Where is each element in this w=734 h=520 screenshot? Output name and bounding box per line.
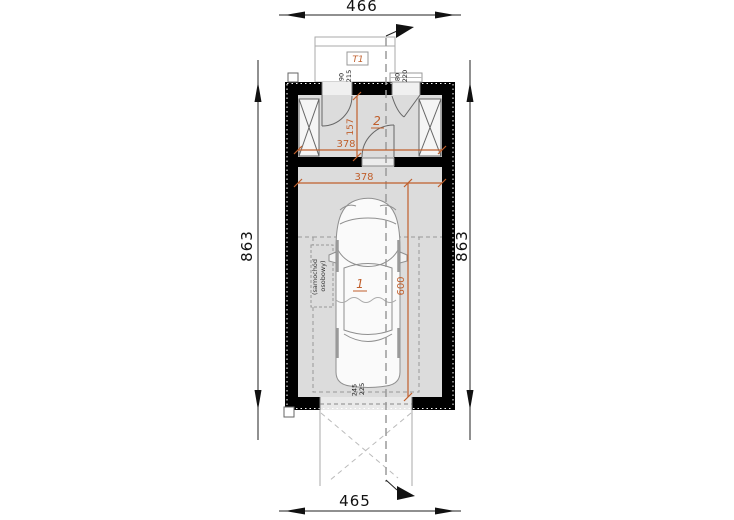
svg-text:2: 2 bbox=[373, 114, 381, 128]
dimension-left-label: 863 bbox=[238, 230, 256, 262]
downspout-bottom-left bbox=[284, 407, 294, 417]
entry-door-size: 90 215 bbox=[338, 70, 354, 82]
dimension-top-label: 466 bbox=[346, 0, 378, 15]
floor-plan: T1 bbox=[0, 0, 734, 520]
car-body bbox=[336, 198, 400, 387]
driveway bbox=[320, 410, 412, 486]
storage-left bbox=[299, 99, 319, 156]
dimension-parking-length-label: 600 bbox=[396, 276, 407, 295]
garage-gate-size: 245 225 bbox=[351, 382, 367, 397]
dimension-garage-width-label: 378 bbox=[354, 172, 373, 183]
dimension-bottom-label: 465 bbox=[339, 492, 371, 510]
axis-arrow-top bbox=[396, 24, 414, 38]
svg-text:1: 1 bbox=[356, 277, 364, 291]
car-note: (samochód osobowy) bbox=[311, 257, 327, 295]
dimension-right-label: 863 bbox=[453, 230, 471, 262]
dimension-vestibule-depth-label: 157 bbox=[346, 118, 356, 135]
terrace-label: T1 bbox=[352, 55, 363, 65]
side-door-size: 80 220 bbox=[394, 70, 410, 82]
dimension-vestibule-width-label: 378 bbox=[336, 139, 355, 150]
axis-arrow-bottom bbox=[397, 486, 415, 500]
downspout-top-left bbox=[288, 73, 298, 82]
floor-plan-canvas: T1 bbox=[0, 0, 734, 520]
storage-right bbox=[419, 99, 441, 156]
